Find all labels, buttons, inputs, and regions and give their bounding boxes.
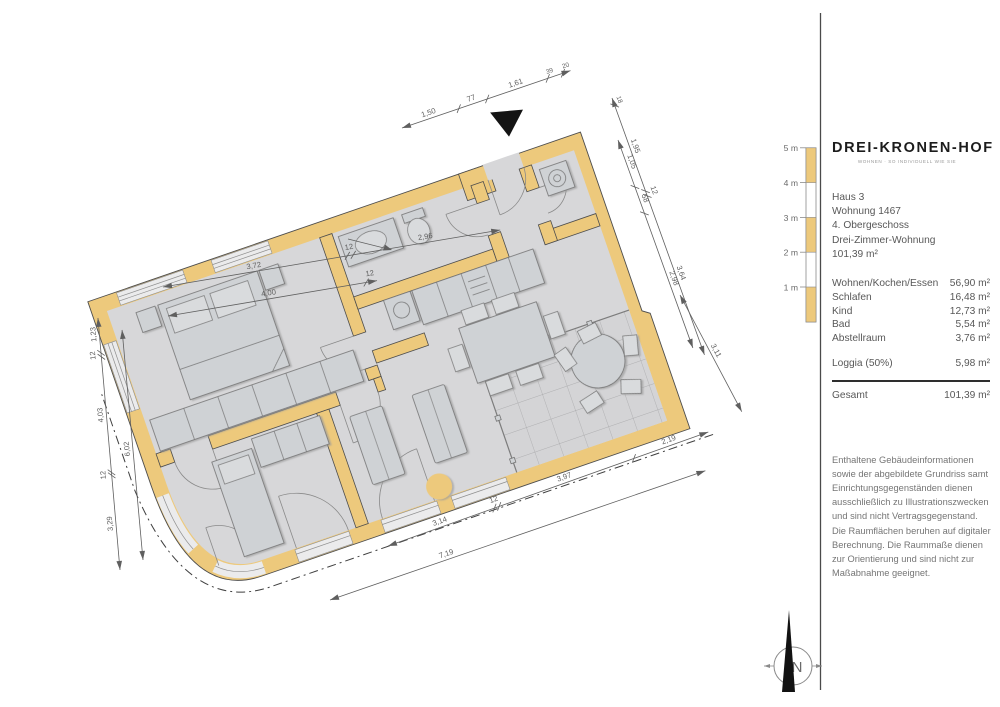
svg-text:6,02: 6,02 — [122, 441, 132, 457]
info-flaeche: 101,39 m² — [832, 248, 990, 262]
svg-text:12: 12 — [88, 351, 98, 360]
disclaimer-text: Enthaltene Gebäudeinformationen sowie de… — [832, 453, 992, 581]
table-row: Wohnen/Kochen/Essen 56,90 m² — [832, 277, 990, 291]
svg-text:12: 12 — [488, 494, 499, 505]
brand-title: DREI-KRONEN-HOF — [832, 140, 990, 156]
svg-text:12: 12 — [98, 471, 108, 480]
svg-text:4 m: 4 m — [784, 178, 798, 188]
info-typ: Drei-Zimmer-Wohnung — [832, 234, 990, 248]
svg-text:5 m: 5 m — [784, 143, 798, 153]
scale-bar: 5 m 4 m 3 m 2 m 1 m — [784, 143, 816, 322]
table-row: Schlafen 16,48 m² — [832, 291, 990, 305]
dim-top-entrance: 1,50 77 1,61 39 20 — [399, 60, 573, 131]
apartment-plan — [56, 78, 713, 618]
svg-text:3,11: 3,11 — [709, 342, 724, 359]
info-wohnung: Wohnung 1467 — [832, 205, 990, 219]
svg-text:3,29: 3,29 — [105, 516, 115, 532]
svg-text:20: 20 — [561, 61, 570, 70]
svg-text:1,95: 1,95 — [629, 137, 642, 154]
north-arrow-icon: N — [764, 610, 822, 692]
total-divider — [832, 380, 990, 382]
total-row: Gesamt 101,39 m² — [832, 389, 990, 403]
info-haus: Haus 3 — [832, 191, 990, 205]
entrance-arrow-icon — [490, 102, 530, 140]
svg-text:12: 12 — [365, 268, 375, 278]
svg-text:12: 12 — [344, 242, 354, 252]
svg-text:1,05: 1,05 — [625, 153, 638, 170]
svg-text:1,23: 1,23 — [88, 327, 98, 343]
dim-right-lower: 3,11 — [678, 290, 752, 413]
table-row: Abstellraum 3,76 m² — [832, 332, 990, 346]
loggia-row: Loggia (50%) 5,98 m² — [832, 357, 990, 371]
info-geschoss: 4. Obergeschoss — [832, 219, 990, 233]
svg-text:12: 12 — [649, 185, 660, 196]
loggia-chair — [621, 379, 641, 393]
svg-text:77: 77 — [466, 93, 477, 104]
table-row: Bad 5,54 m² — [832, 318, 990, 332]
apartment-info: Haus 3 Wohnung 1467 4. Obergeschoss Drei… — [832, 191, 990, 262]
page: { "panel": { "brand": "DREI-KRONEN-HOF",… — [0, 0, 1000, 707]
svg-text:4,03: 4,03 — [95, 407, 105, 423]
title-block: DREI-KRONEN-HOF WOHNEN · SO INDIVIDUELL … — [832, 140, 990, 580]
svg-text:2 m: 2 m — [784, 248, 798, 258]
brand-tagline: WOHNEN · SO INDIVIDUELL WIE SIE — [832, 159, 982, 164]
svg-text:3 m: 3 m — [784, 213, 798, 223]
room-area-table: Wohnen/Kochen/Essen 56,90 m² Schlafen 16… — [832, 277, 990, 403]
table-row: Kind 12,73 m² — [832, 305, 990, 319]
svg-text:39: 39 — [545, 67, 554, 76]
svg-text:1 m: 1 m — [784, 283, 798, 293]
loggia-chair — [623, 335, 639, 356]
